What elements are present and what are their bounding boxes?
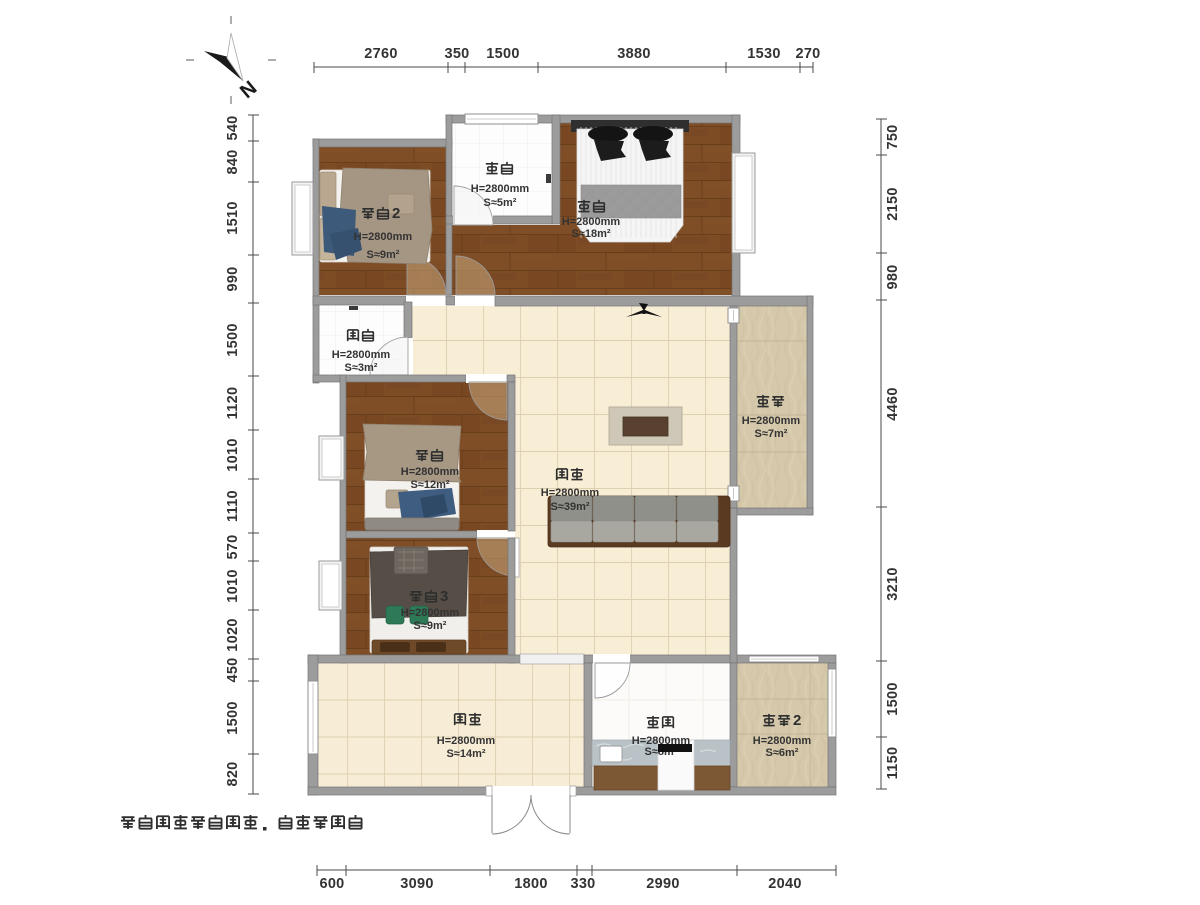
svg-text:S≈5m²: S≈5m² <box>484 197 517 209</box>
svg-text:1150: 1150 <box>885 747 901 780</box>
svg-text:450: 450 <box>225 657 241 682</box>
svg-text:1110: 1110 <box>225 490 241 522</box>
svg-text:H=2800mm: H=2800mm <box>541 487 600 499</box>
svg-text:1120: 1120 <box>225 387 241 420</box>
svg-text:330: 330 <box>570 876 595 892</box>
svg-text:3210: 3210 <box>885 567 901 600</box>
svg-text:750: 750 <box>885 124 901 149</box>
svg-text:H=2800mm: H=2800mm <box>401 607 460 619</box>
svg-text:2040: 2040 <box>768 876 801 892</box>
svg-text:570: 570 <box>225 534 241 559</box>
svg-text:540: 540 <box>225 115 241 140</box>
svg-text:990: 990 <box>225 266 241 291</box>
svg-text:1800: 1800 <box>514 876 547 892</box>
svg-text:1500: 1500 <box>885 682 901 715</box>
svg-text:3: 3 <box>440 588 448 605</box>
svg-text:1010: 1010 <box>225 438 241 471</box>
svg-text:H=2800mm: H=2800mm <box>332 349 391 361</box>
svg-text:2760: 2760 <box>364 46 397 62</box>
svg-text:2: 2 <box>392 205 400 222</box>
svg-text:2990: 2990 <box>646 876 679 892</box>
svg-text:1500: 1500 <box>225 323 241 356</box>
svg-text:350: 350 <box>444 46 469 62</box>
svg-text:H=2800mm: H=2800mm <box>753 735 812 747</box>
svg-text:H=2800mm: H=2800mm <box>471 183 530 195</box>
svg-text:270: 270 <box>795 46 820 62</box>
svg-text:3090: 3090 <box>400 876 433 892</box>
svg-text:H=2800mm: H=2800mm <box>354 231 413 243</box>
svg-text:1500: 1500 <box>486 46 519 62</box>
svg-text:S≈6m²: S≈6m² <box>766 747 799 759</box>
svg-text:S≈7m²: S≈7m² <box>755 428 788 440</box>
svg-text:1500: 1500 <box>225 701 241 734</box>
svg-text:1020: 1020 <box>225 618 241 651</box>
svg-text:2150: 2150 <box>885 187 901 220</box>
svg-text:H=2800mm: H=2800mm <box>562 216 621 228</box>
svg-text:600: 600 <box>319 876 344 892</box>
svg-text:S≈9m²: S≈9m² <box>414 620 447 632</box>
svg-text:H=2800mm: H=2800mm <box>742 415 801 427</box>
svg-text:840: 840 <box>225 149 241 174</box>
svg-text:3880: 3880 <box>617 46 650 62</box>
svg-text:H=2800mm: H=2800mm <box>437 735 496 747</box>
svg-text:1010: 1010 <box>225 569 241 602</box>
svg-text:S≈12m²: S≈12m² <box>410 479 449 491</box>
svg-text:S≈3m²: S≈3m² <box>345 362 378 374</box>
svg-text:H=2800mm: H=2800mm <box>401 466 460 478</box>
svg-text:2: 2 <box>793 712 801 729</box>
svg-text:S≈18m²: S≈18m² <box>571 228 610 240</box>
svg-text:S≈14m²: S≈14m² <box>446 748 485 760</box>
svg-text:S≈39m²: S≈39m² <box>550 501 589 513</box>
svg-text:1530: 1530 <box>747 46 780 62</box>
svg-text:980: 980 <box>885 264 901 289</box>
svg-text:S≈9m²: S≈9m² <box>367 249 400 261</box>
svg-text:4460: 4460 <box>885 387 901 420</box>
svg-text:820: 820 <box>225 761 241 786</box>
svg-text:1510: 1510 <box>225 201 241 234</box>
